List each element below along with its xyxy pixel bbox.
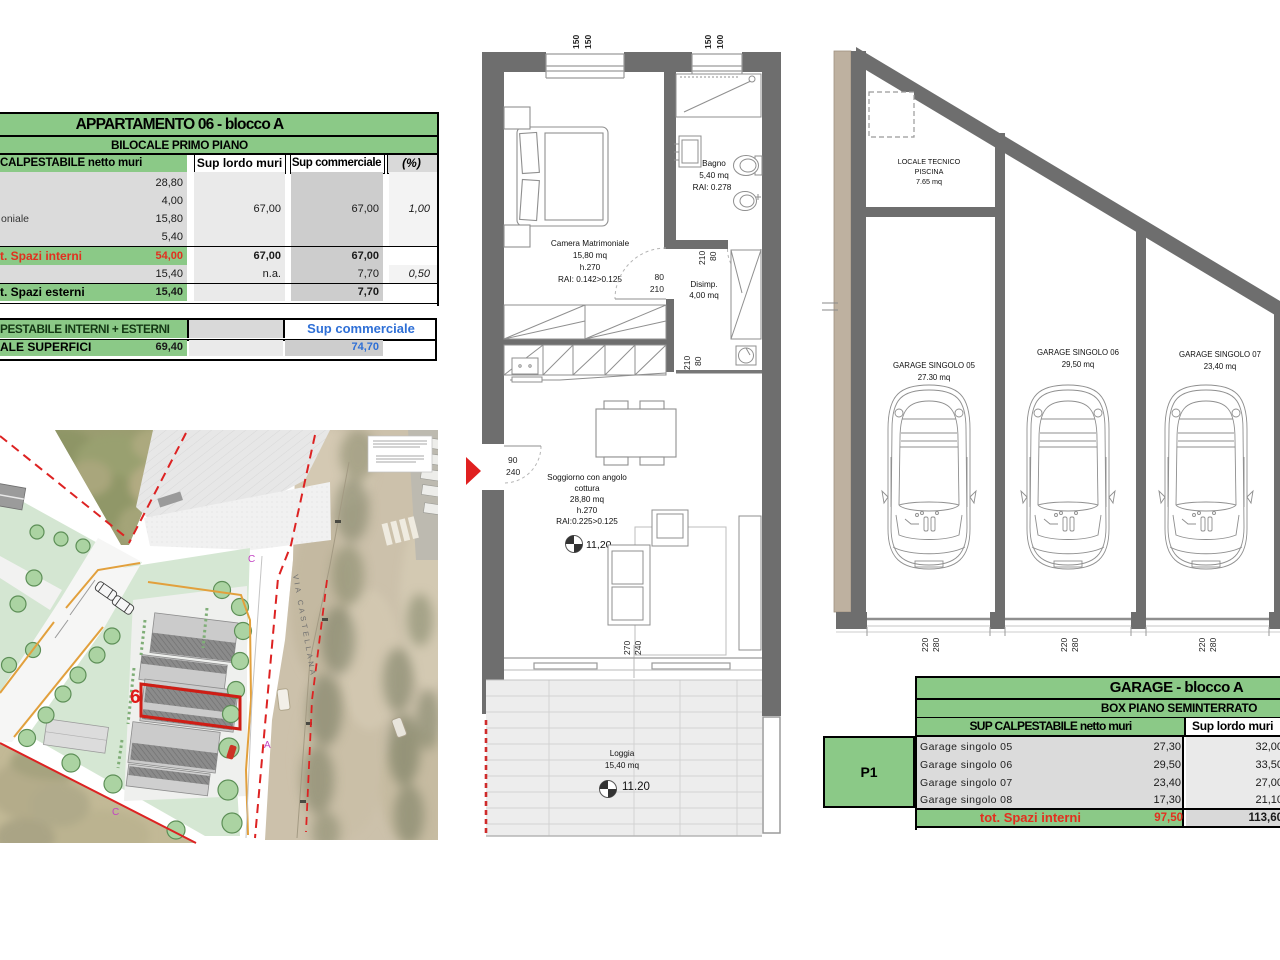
svg-text:150: 150	[703, 35, 713, 49]
svg-text:cottura: cottura	[574, 484, 599, 493]
svg-text:C: C	[112, 807, 119, 818]
svg-text:240: 240	[506, 467, 520, 477]
svg-text:15,80 mq: 15,80 mq	[573, 251, 608, 260]
svg-text:90: 90	[508, 455, 518, 465]
svg-text:220: 220	[920, 638, 930, 652]
svg-text:270: 270	[622, 641, 632, 655]
svg-text:RAI: 0.278: RAI: 0.278	[693, 183, 732, 192]
svg-text:GARAGE SINGOLO 07: GARAGE SINGOLO 07	[1179, 350, 1261, 359]
svg-text:GARAGE SINGOLO 05: GARAGE SINGOLO 05	[893, 361, 976, 370]
svg-text:23,40 mq: 23,40 mq	[1204, 362, 1237, 371]
svg-text:LOCALE TECNICO: LOCALE TECNICO	[898, 157, 961, 166]
svg-text:RAI:0.225>0.125: RAI:0.225>0.125	[556, 517, 618, 526]
svg-text:A: A	[264, 740, 271, 751]
svg-text:29,50 mq: 29,50 mq	[1062, 360, 1095, 369]
svg-text:PISCINA: PISCINA	[915, 167, 944, 176]
svg-text:220: 220	[1197, 638, 1207, 652]
svg-text:h.270: h.270	[577, 506, 598, 515]
svg-text:GARAGE SINGOLO 06: GARAGE SINGOLO 06	[1037, 348, 1119, 357]
svg-text:280: 280	[1070, 638, 1080, 652]
svg-text:210: 210	[697, 251, 707, 265]
svg-text:240: 240	[633, 641, 643, 655]
svg-text:11.20: 11.20	[622, 781, 650, 793]
svg-text:RAI: 0.142>0.125: RAI: 0.142>0.125	[558, 275, 622, 284]
svg-text:Loggia: Loggia	[610, 749, 635, 758]
svg-text:C: C	[248, 554, 255, 565]
svg-text:5,40 mq: 5,40 mq	[699, 171, 729, 180]
svg-text:280: 280	[931, 638, 941, 652]
svg-text:Soggiorno con angolo: Soggiorno con angolo	[547, 473, 627, 482]
svg-text:Disimp.: Disimp.	[690, 280, 717, 289]
svg-text:7.65 mq: 7.65 mq	[916, 177, 942, 186]
svg-text:150: 150	[571, 35, 581, 49]
svg-text:28,80 mq: 28,80 mq	[570, 495, 605, 504]
svg-text:80: 80	[655, 272, 665, 282]
svg-text:Camera Matrimoniale: Camera Matrimoniale	[551, 239, 630, 248]
svg-text:280: 280	[1208, 638, 1218, 652]
svg-text:80: 80	[693, 356, 703, 366]
svg-text:4,00 mq: 4,00 mq	[689, 291, 719, 300]
svg-text:100: 100	[715, 35, 725, 49]
svg-text:150: 150	[583, 35, 593, 49]
svg-text:Bagno: Bagno	[702, 159, 726, 168]
svg-text:6: 6	[130, 687, 141, 708]
svg-text:210: 210	[650, 284, 664, 294]
svg-text:27.30 mq: 27.30 mq	[918, 373, 951, 382]
svg-text:210: 210	[682, 356, 692, 370]
svg-text:80: 80	[708, 251, 718, 261]
svg-text:h.270: h.270	[580, 263, 601, 272]
svg-text:15,40 mq: 15,40 mq	[605, 761, 640, 770]
svg-text:220: 220	[1059, 638, 1069, 652]
